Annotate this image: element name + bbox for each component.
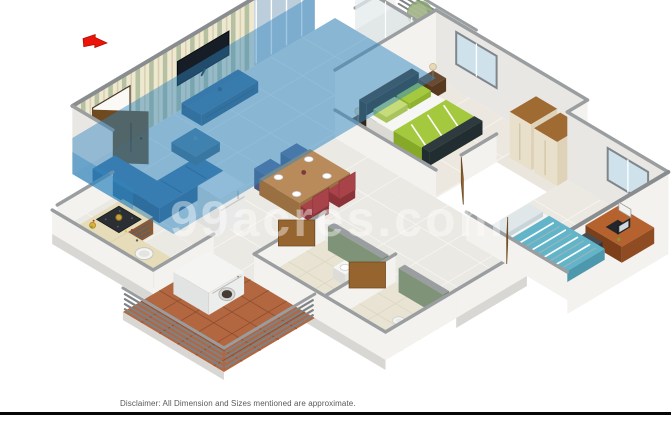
watermark: 99acres.com xyxy=(170,191,506,247)
floorplan-screenshot: 99acres.com Disclaimer: All Dimension an… xyxy=(0,0,671,422)
disclaimer-text: Disclaimer: All Dimension and Sizes ment… xyxy=(120,399,356,408)
bathroom-2-door xyxy=(349,262,385,288)
watermark-text: 99acres.com xyxy=(170,191,506,247)
floorplan-3d-render: 99acres.com xyxy=(0,0,671,422)
bottom-divider xyxy=(0,412,671,415)
